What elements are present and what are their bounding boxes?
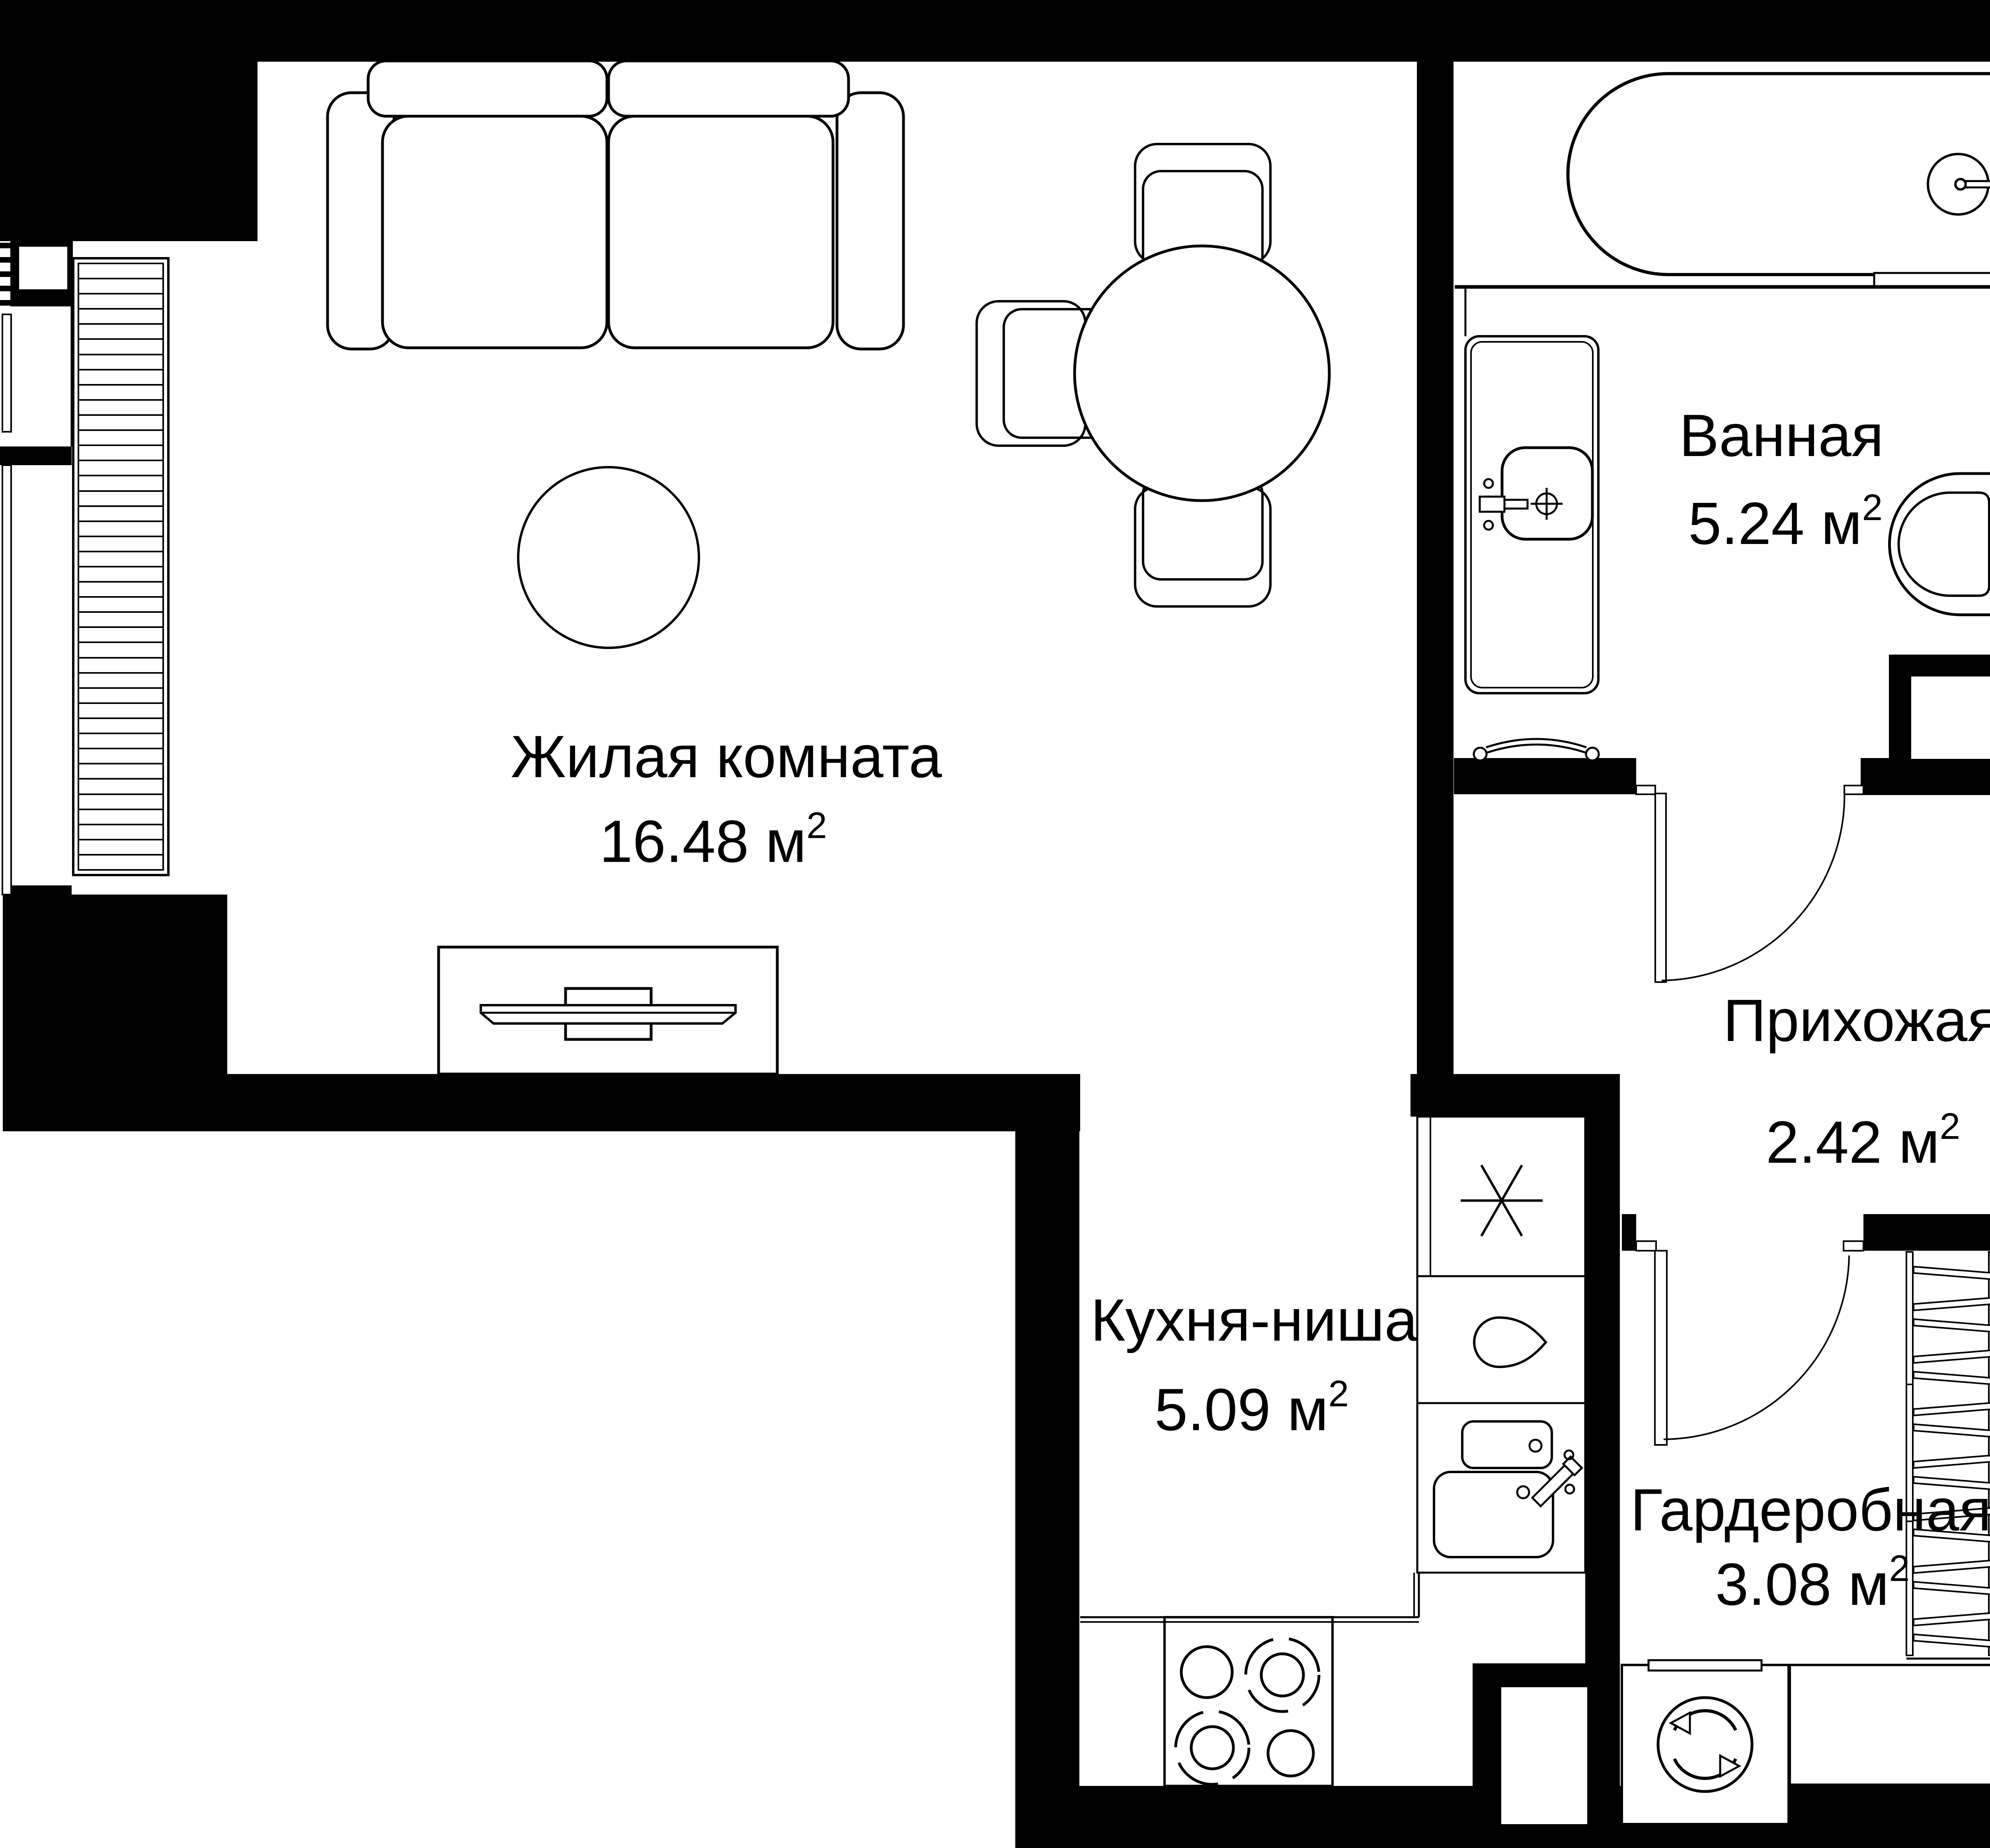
svg-text:2.42 м2: 2.42 м2 (1766, 1105, 1960, 1175)
svg-text:Гардеробная: Гардеробная (1630, 1476, 1990, 1543)
svg-text:Кухня-ниша: Кухня-ниша (1091, 1287, 1418, 1353)
svg-text:Ванная: Ванная (1679, 402, 1884, 469)
svg-text:5.09 м2: 5.09 м2 (1155, 1373, 1349, 1443)
svg-text:Прихожая: Прихожая (1723, 987, 1990, 1054)
svg-text:5.24 м2: 5.24 м2 (1688, 487, 1883, 557)
svg-text:3.08 м2: 3.08 м2 (1715, 1548, 1910, 1618)
svg-text:16.48 м2: 16.48 м2 (599, 805, 827, 875)
svg-text:Жилая комната: Жилая комната (511, 723, 942, 790)
